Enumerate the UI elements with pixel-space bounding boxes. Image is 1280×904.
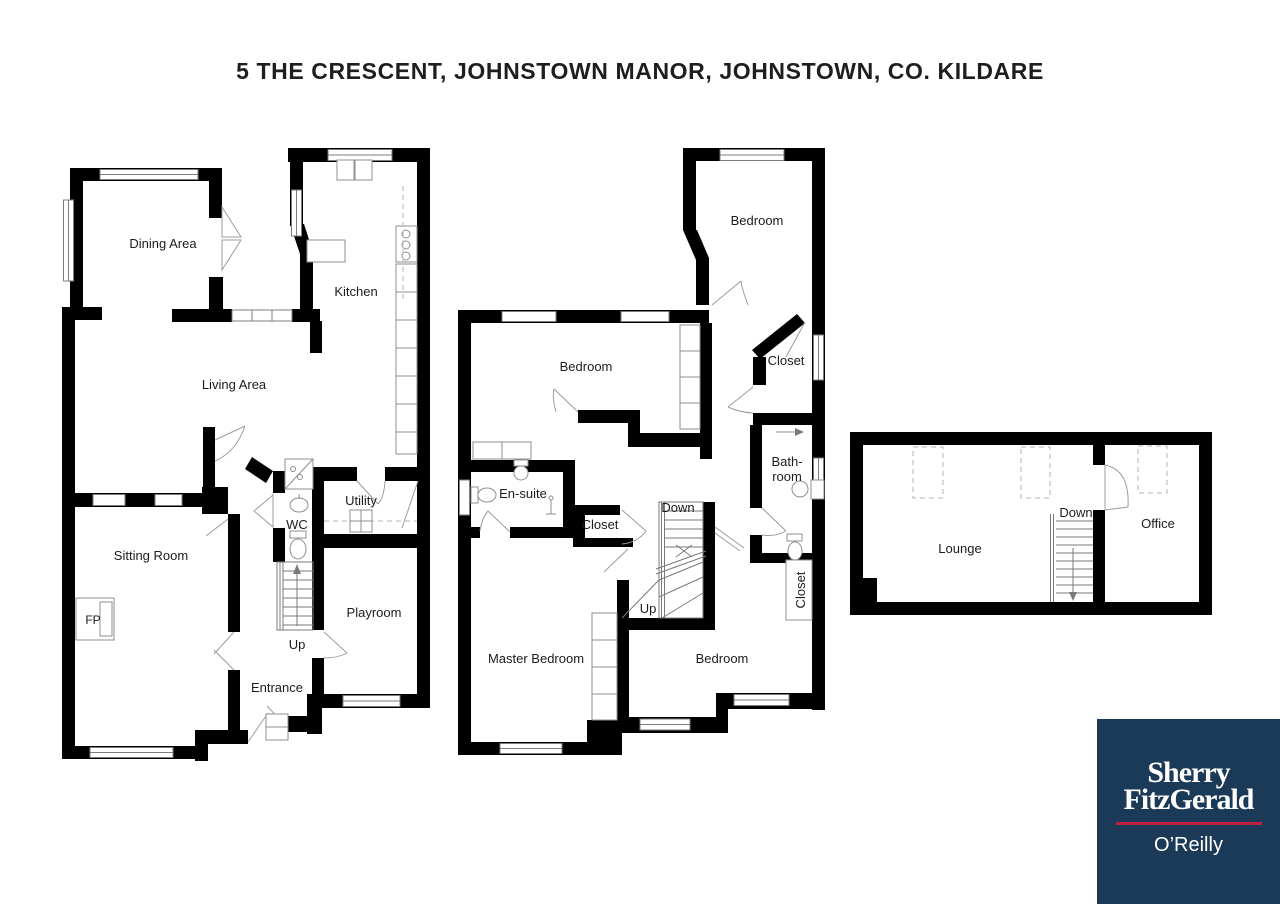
agency-logo: Sherry FitzGerald O’Reilly (1097, 719, 1280, 904)
floorplan-drawing: Dining Area Kitchen Living Area Sitting … (0, 0, 1280, 904)
ground-floor-plan: Dining Area Kitchen Living Area Sitting … (62, 148, 430, 761)
master-wardrobe (592, 613, 617, 720)
second-floor-plan: Down Lounge Office (850, 432, 1212, 615)
label-dining-area: Dining Area (129, 236, 197, 251)
label-closet-side: Closet (793, 571, 808, 608)
logo-divider (1116, 822, 1262, 825)
label-stairs-down-first: Down (661, 500, 694, 515)
label-bedroom-rear: Bedroom (731, 213, 784, 228)
label-stairs-up-ground: Up (289, 637, 306, 652)
label-sitting-room: Sitting Room (114, 548, 188, 563)
first-floor-plan: Bedroom Bedroom Closet En-suite Closet B… (458, 148, 825, 755)
label-closet-landing: Closet (582, 517, 619, 532)
label-ensuite: En-suite (499, 486, 547, 501)
label-playroom: Playroom (347, 605, 402, 620)
office-door (1105, 465, 1128, 510)
label-kitchen: Kitchen (334, 284, 377, 299)
label-master-bedroom: Master Bedroom (488, 651, 584, 666)
ensuite-toilet-icon (471, 487, 496, 503)
label-stairs-up-first: Up (640, 601, 657, 616)
label-wc: WC (286, 517, 308, 532)
label-bedroom-front: Bedroom (696, 651, 749, 666)
label-lounge: Lounge (938, 541, 981, 556)
ground-floor-walls (62, 148, 430, 761)
label-fireplace: FP (85, 613, 100, 627)
ensuite-sink-icon (514, 460, 528, 480)
label-bathroom-line2: room (772, 469, 802, 484)
label-office: Office (1141, 516, 1175, 531)
label-living-area: Living Area (202, 377, 267, 392)
bathroom-toilet-icon (787, 534, 802, 560)
skylight-icons (913, 446, 1167, 498)
label-closet-rear: Closet (768, 353, 805, 368)
label-entrance: Entrance (251, 680, 303, 695)
logo-line3: O’Reilly (1097, 834, 1280, 857)
floorplan-page: 5 THE CRESCENT, JOHNSTOWN MANOR, JOHNSTO… (0, 0, 1280, 904)
wc-toilet-icon (290, 531, 306, 559)
second-floor-stairs (1051, 514, 1094, 602)
kitchen-hob-icon (396, 226, 417, 262)
logo-line1: Sherry (1097, 759, 1280, 786)
utility-washer-icon (324, 510, 417, 532)
kitchen-sink-icon (337, 160, 372, 180)
label-utility: Utility (345, 493, 377, 508)
first-floor-stairs (622, 502, 706, 618)
label-bedroom-middle: Bedroom (560, 359, 613, 374)
logo-line2: FitzGerald (1097, 786, 1280, 813)
ground-floor-stairs (277, 562, 313, 630)
label-stairs-down-attic: Down (1059, 505, 1092, 520)
label-bathroom-line1: Bath- (771, 454, 802, 469)
wc-sink-icon (285, 459, 313, 512)
ensuite-shower-icon (546, 496, 556, 514)
